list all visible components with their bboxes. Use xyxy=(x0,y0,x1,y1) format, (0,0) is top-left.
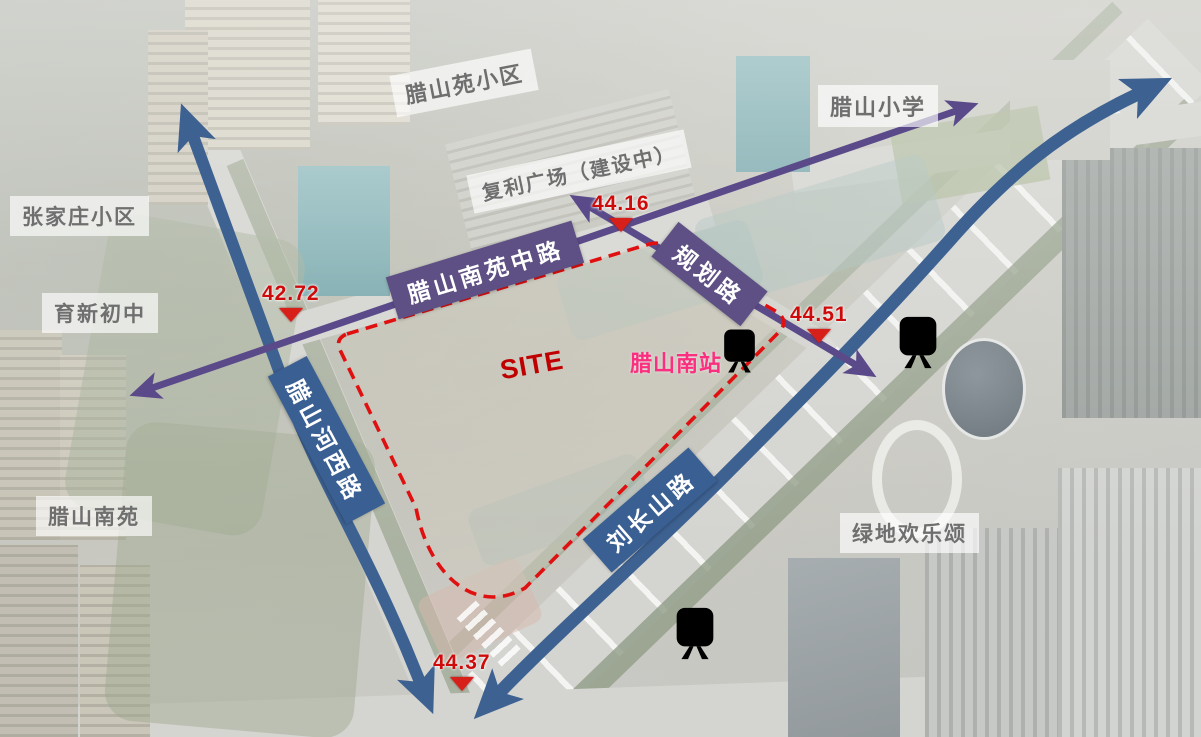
site-analysis-map: 腊山南苑中路 规划路 腊山河西路 刘长山路 腊山苑小区 腊山小学 复利广场（建设… xyxy=(0,0,1201,737)
place-label-lashan-primary-school: 腊山小学 xyxy=(818,85,938,127)
elevation-triangle-icon xyxy=(609,218,633,232)
elevation-marker: 44.51 xyxy=(790,303,848,343)
elevation-value: 44.51 xyxy=(790,303,848,327)
metro-station-icon xyxy=(896,315,940,370)
place-label-lashan-nanyuan: 腊山南苑 xyxy=(36,496,152,536)
place-label-yuxin-middle-school: 育新初中 xyxy=(42,293,158,333)
atmospheric-haze xyxy=(0,0,1201,737)
elevation-marker: 44.16 xyxy=(592,192,650,232)
place-label-zhangjiazhuang-residential: 张家庄小区 xyxy=(10,196,149,236)
elevation-marker: 44.37 xyxy=(433,651,491,691)
elevation-value: 44.16 xyxy=(592,192,650,216)
elevation-triangle-icon xyxy=(450,677,474,691)
place-label-greenland-joy: 绿地欢乐颂 xyxy=(840,513,979,553)
elevation-triangle-icon xyxy=(279,308,303,322)
metro-station-icon xyxy=(673,606,717,661)
elevation-marker: 42.72 xyxy=(262,282,320,322)
elevation-value: 44.37 xyxy=(433,651,491,675)
elevation-triangle-icon xyxy=(807,329,831,343)
metro-station-icon xyxy=(721,328,758,374)
metro-station-label-lashan-south: 腊山南站 xyxy=(630,346,722,378)
aerial-photo-background xyxy=(0,0,1201,737)
elevation-value: 42.72 xyxy=(262,282,320,306)
